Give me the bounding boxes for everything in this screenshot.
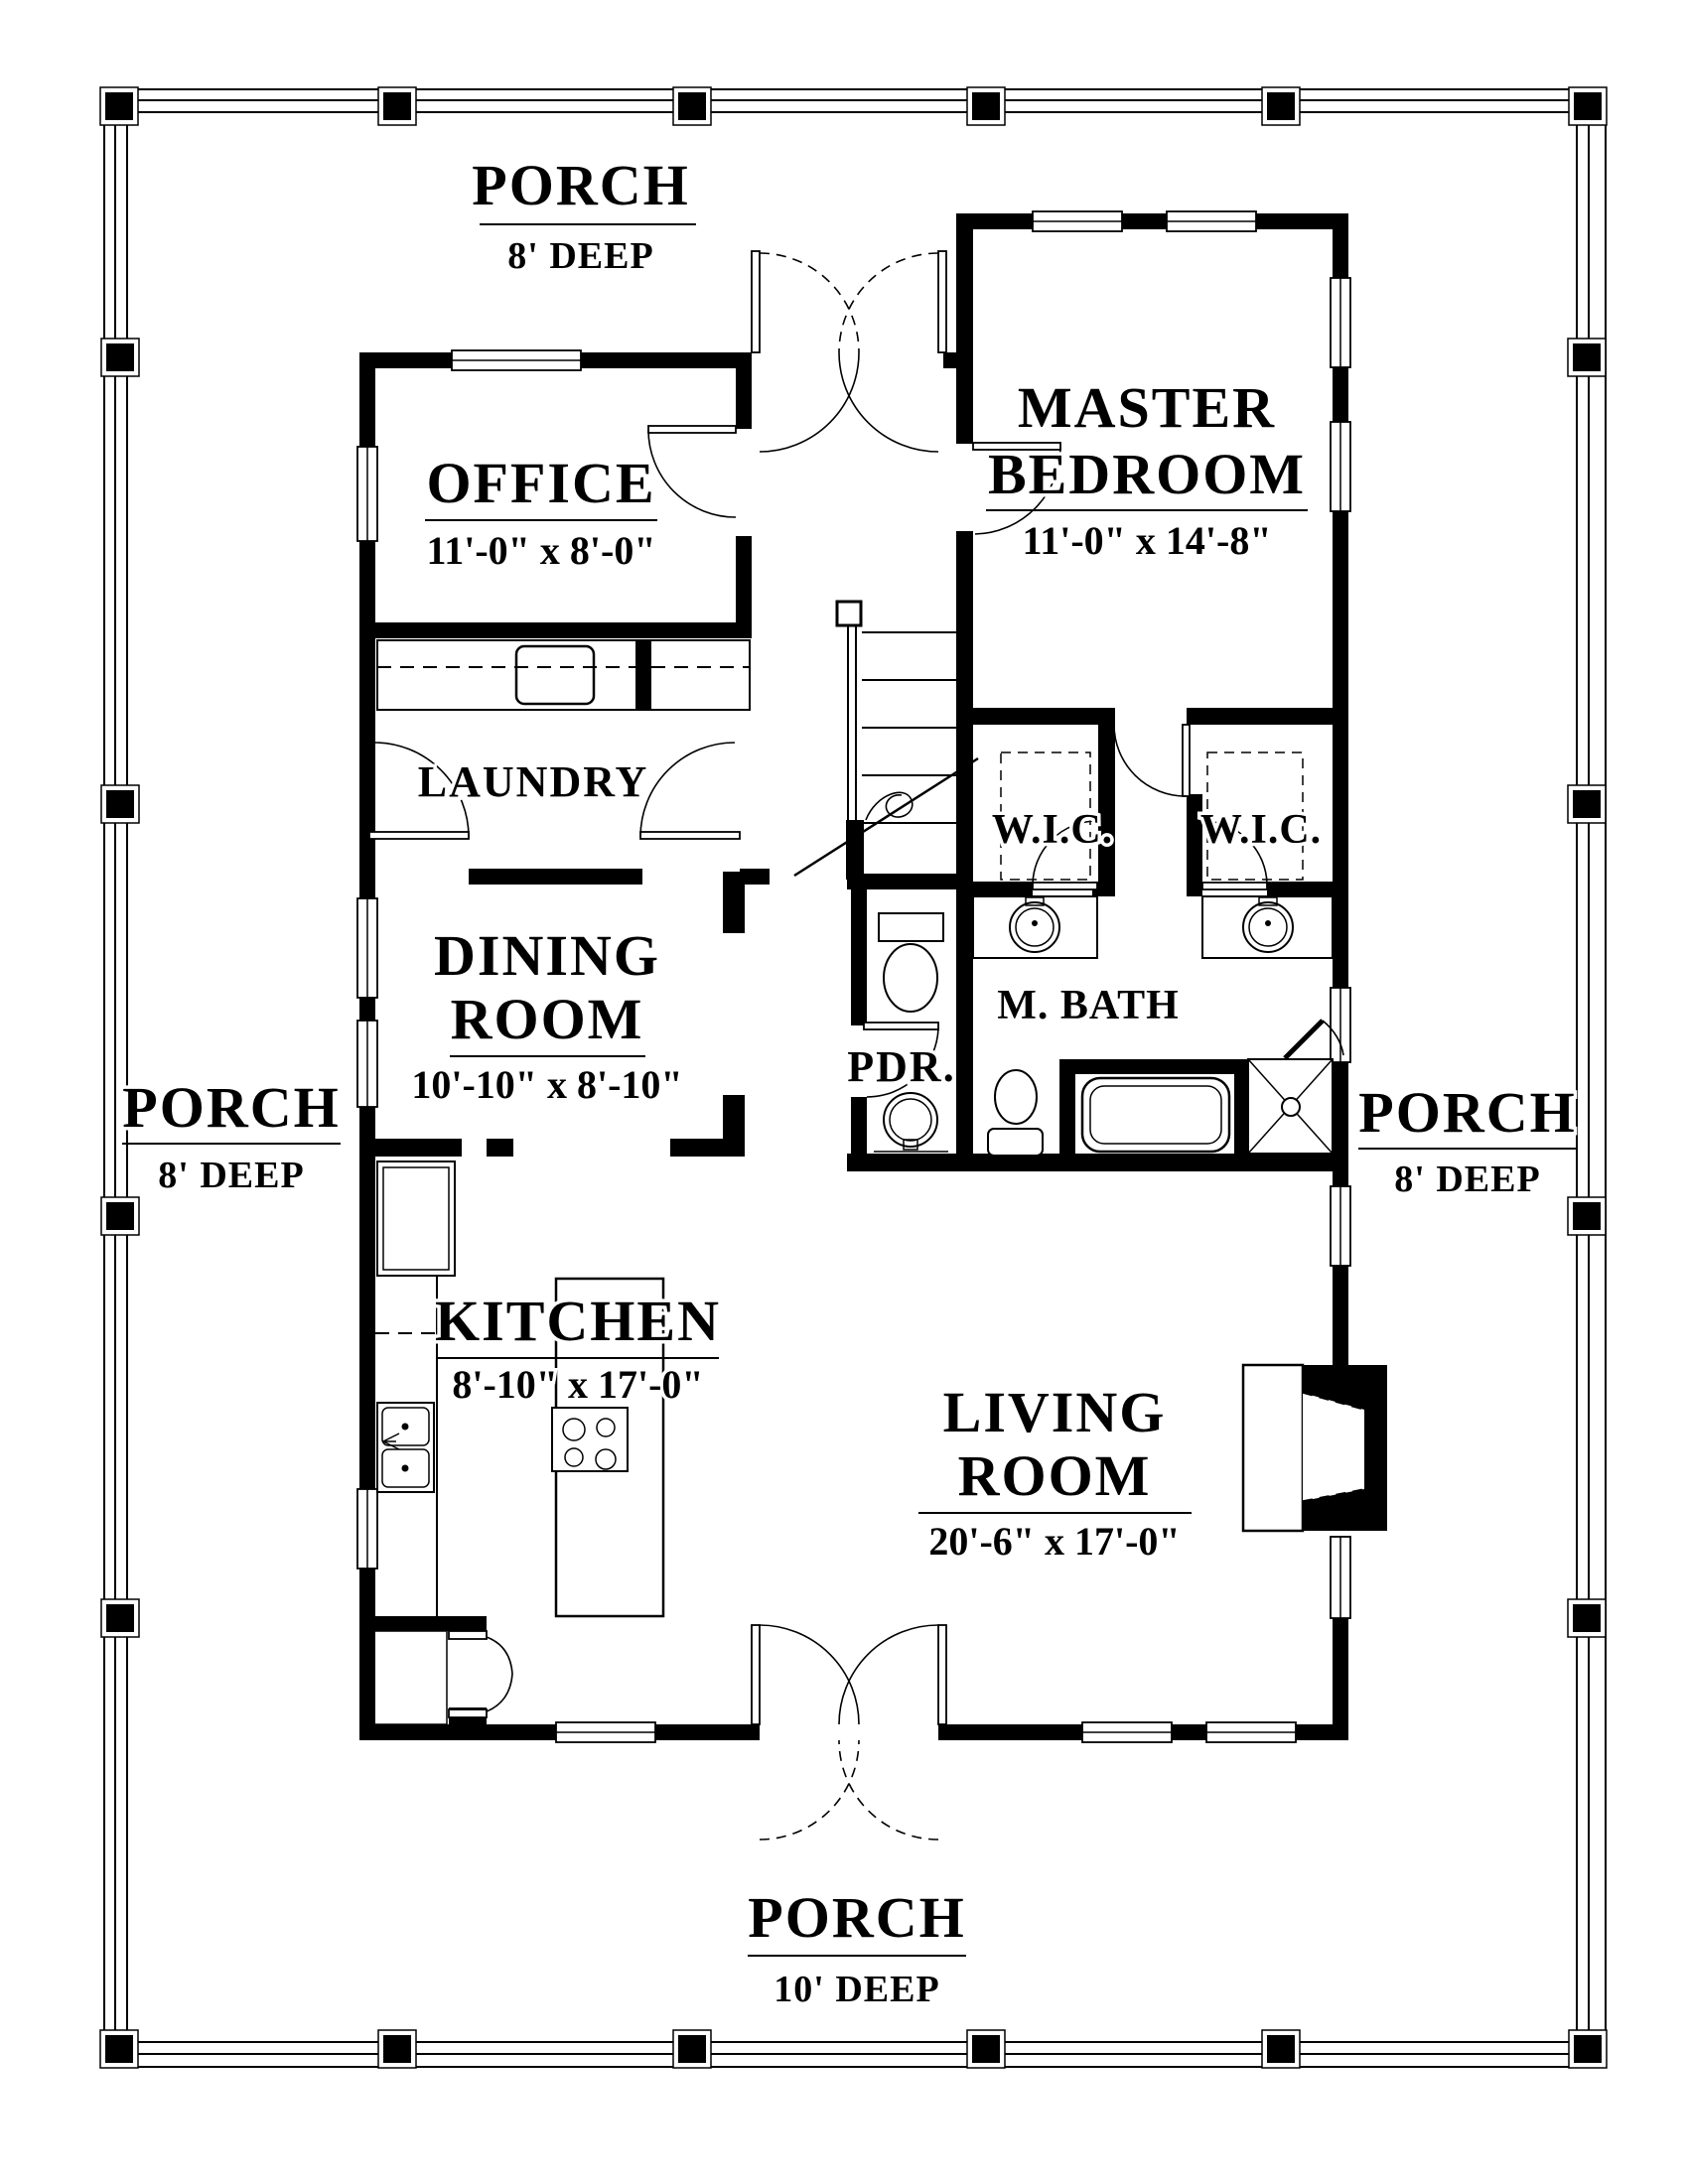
laundry-label: LAUNDRY bbox=[418, 757, 648, 806]
living-label-2: ROOM bbox=[958, 1443, 1152, 1508]
porch-right-depth: 8' DEEP bbox=[1394, 1159, 1540, 1200]
master-bedroom-label-1: MASTER bbox=[1018, 375, 1276, 440]
window bbox=[1206, 1722, 1296, 1742]
staircase-icon bbox=[794, 602, 978, 876]
kitchen-dims: 8'-10" x 17'-0" bbox=[452, 1362, 703, 1407]
washer-dryer-icon bbox=[377, 640, 750, 710]
office-dims: 11'-0" x 8'-0" bbox=[426, 528, 655, 573]
porch-left-depth: 8' DEEP bbox=[158, 1155, 304, 1196]
porch-top-depth: 8' DEEP bbox=[507, 235, 653, 277]
kitchen-sink-icon bbox=[377, 1403, 434, 1492]
dining-label-2: ROOM bbox=[451, 987, 644, 1051]
floor-plan-page: PORCH 8' DEEP PORCH 8' DEEP PORCH 8' DEE… bbox=[0, 0, 1688, 2184]
pantry-closet-icon bbox=[371, 1631, 447, 1724]
french-doors-front-icon bbox=[752, 251, 946, 452]
master-toilet-icon bbox=[988, 1070, 1043, 1156]
french-doors-rear-icon bbox=[752, 1625, 946, 1840]
porch-bottom-label: PORCH bbox=[748, 1885, 965, 1950]
window bbox=[1331, 1186, 1350, 1266]
corner-shower-icon bbox=[1248, 1059, 1333, 1154]
kitchen-label: KITCHEN bbox=[435, 1289, 721, 1353]
window bbox=[357, 898, 377, 998]
wic-right-label: W.I.C. bbox=[1200, 807, 1322, 853]
window bbox=[1167, 211, 1256, 231]
master-bedroom-label-2: BEDROOM bbox=[988, 442, 1306, 506]
kitchen-fixtures bbox=[371, 1161, 663, 1724]
porch-bottom-depth: 10' DEEP bbox=[774, 1969, 939, 2010]
window bbox=[1033, 211, 1122, 231]
master-bath-label: M. BATH bbox=[997, 983, 1180, 1028]
window bbox=[357, 1489, 377, 1569]
vanity-sink-right-icon bbox=[1202, 896, 1333, 958]
porch-top-label: PORCH bbox=[472, 153, 689, 217]
window bbox=[357, 447, 377, 541]
window bbox=[1082, 1722, 1172, 1742]
porch-right-label: PORCH bbox=[1358, 1080, 1576, 1145]
office-label: OFFICE bbox=[426, 451, 655, 515]
master-bedroom-dims: 11'-0" x 14'-8" bbox=[1022, 518, 1271, 563]
living-dims: 20'-6" x 17'-0" bbox=[928, 1519, 1180, 1564]
labels: PORCH 8' DEEP PORCH 8' DEEP PORCH 8' DEE… bbox=[122, 153, 1577, 2010]
window bbox=[1331, 278, 1350, 367]
bathtub-icon bbox=[1082, 1078, 1229, 1152]
dining-label-1: DINING bbox=[434, 923, 660, 988]
window bbox=[1331, 988, 1350, 1062]
window bbox=[1331, 1537, 1350, 1618]
wic-left-label: W.I.C. bbox=[992, 807, 1113, 853]
window bbox=[1331, 422, 1350, 511]
floor-plan-drawing: PORCH 8' DEEP PORCH 8' DEEP PORCH 8' DEE… bbox=[0, 0, 1688, 2184]
fireplace-icon bbox=[1243, 1365, 1387, 1531]
dining-dims: 10'-10" x 8'-10" bbox=[411, 1062, 682, 1107]
window bbox=[556, 1722, 655, 1742]
refrigerator-icon bbox=[377, 1161, 455, 1276]
powder-label: PDR. bbox=[847, 1042, 955, 1091]
window bbox=[452, 350, 581, 370]
vanity-sink-left-icon bbox=[973, 896, 1097, 958]
porch-left-label: PORCH bbox=[122, 1075, 340, 1140]
powder-pedestal-sink-icon bbox=[874, 1093, 948, 1152]
powder-toilet-icon bbox=[879, 913, 943, 1012]
living-label-1: LIVING bbox=[943, 1380, 1167, 1444]
window bbox=[357, 1021, 377, 1107]
